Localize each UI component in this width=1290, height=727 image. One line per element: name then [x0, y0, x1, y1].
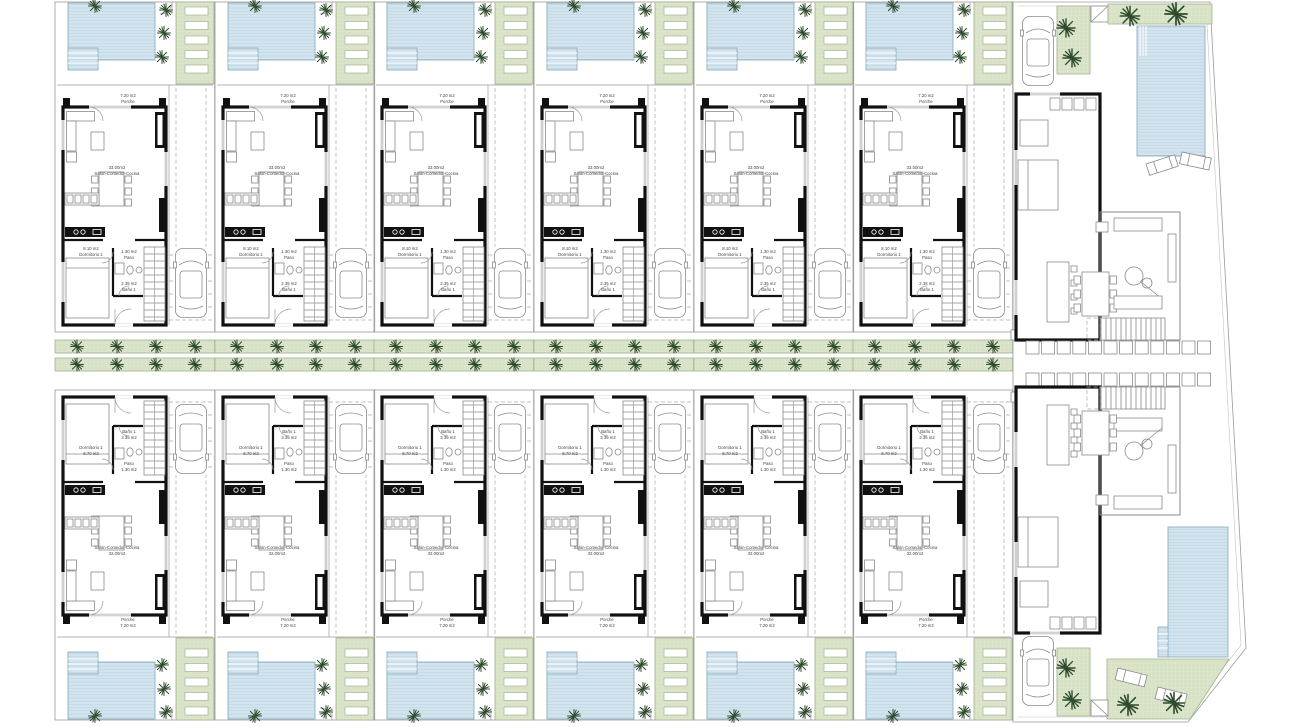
wc: [1020, 581, 1048, 607]
wc: [1020, 120, 1048, 146]
villa-bottom: [1014, 373, 1229, 719]
side-table: [1096, 495, 1108, 505]
central-landscape-alley: [55, 340, 1013, 371]
sofa: [1114, 496, 1162, 509]
bed: [1018, 517, 1058, 567]
dining-table: [1082, 272, 1109, 316]
dining-table: [1082, 411, 1109, 455]
villa-plot: [1011, 2, 1246, 722]
terrace-tiles: [1026, 373, 1211, 386]
pool: [1168, 527, 1228, 657]
sun-lounger: [1180, 152, 1212, 170]
villa-top: [1014, 3, 1212, 354]
round-table: [1125, 267, 1143, 285]
site-plan: 7.20 m2 Porche 33.00m2 Salón-Comedor-Coc…: [0, 0, 1290, 727]
terrace-tiles: [1026, 341, 1211, 354]
pool: [1137, 26, 1205, 156]
round-table: [1125, 442, 1143, 460]
bed: [1018, 160, 1058, 210]
parked-car: [1020, 637, 1055, 706]
sofa: [1114, 296, 1162, 309]
kitchen-island: [1047, 262, 1069, 322]
townhouse-row-top: [55, 0, 1013, 332]
sun-lounger: [1146, 155, 1178, 176]
pool-steps: [1158, 627, 1168, 657]
parked-car: [1020, 17, 1055, 86]
bench: [1168, 234, 1176, 282]
kitchen-island: [1047, 405, 1069, 465]
bench: [1168, 445, 1176, 493]
side-table: [1096, 222, 1108, 232]
sofa: [1114, 218, 1162, 231]
townhouse-row-bottom: [55, 390, 1013, 723]
sofa: [1114, 418, 1162, 431]
